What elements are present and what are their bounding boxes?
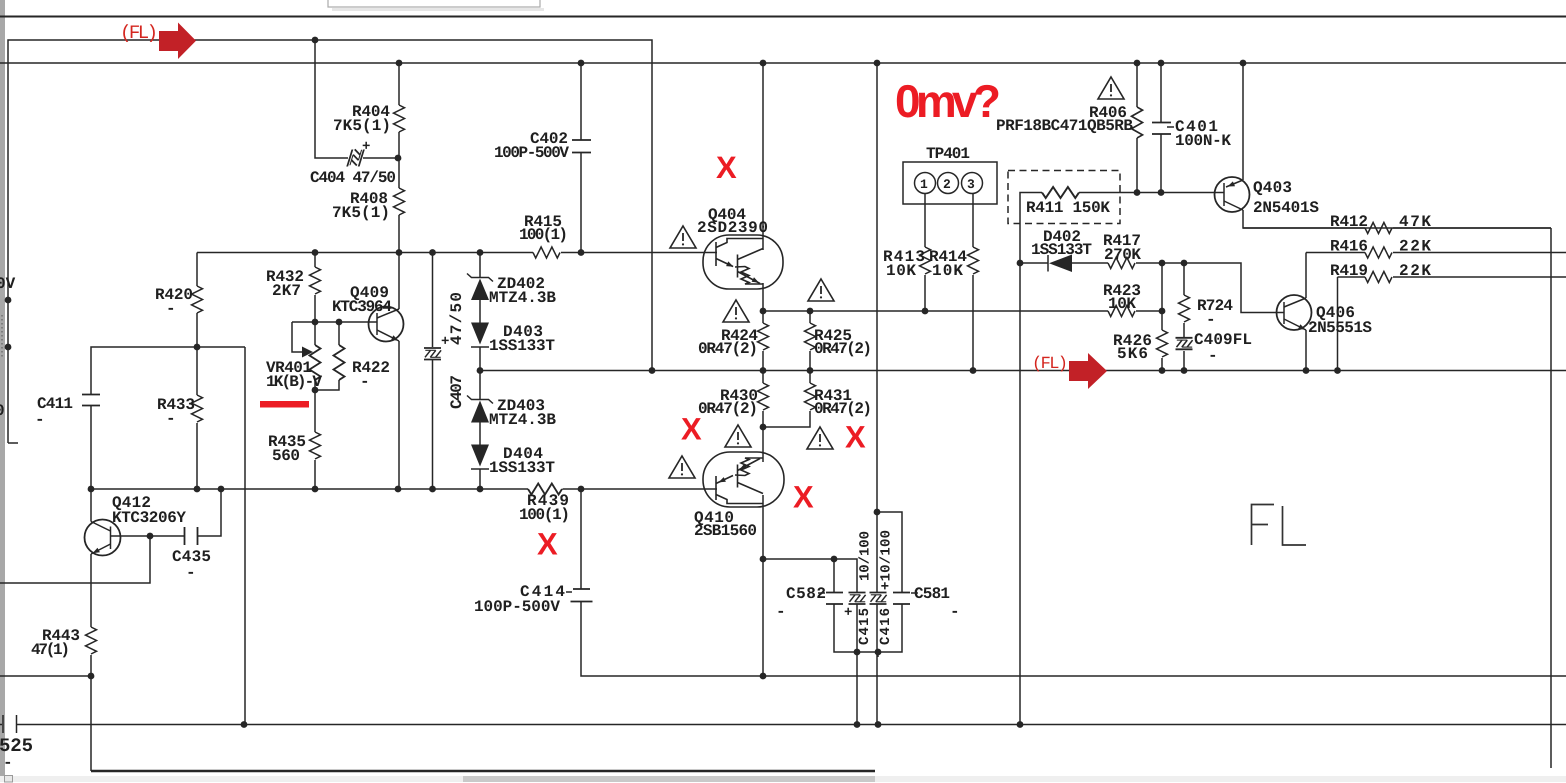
svg-text:3: 3 — [967, 177, 975, 192]
svg-text:1: 1 — [920, 177, 928, 192]
svg-text:2N5401S: 2N5401S — [1253, 199, 1319, 217]
svg-text:2SD2390: 2SD2390 — [697, 219, 768, 237]
svg-text:10K: 10K — [886, 262, 916, 280]
svg-text:C581: C581 — [914, 585, 950, 603]
svg-text:0R47(2): 0R47(2) — [814, 340, 872, 358]
svg-text:10/100: 10/100 — [858, 531, 874, 581]
svg-text:R419: R419 — [1330, 262, 1368, 280]
svg-text:X: X — [845, 420, 866, 455]
svg-text:270K: 270K — [1104, 246, 1141, 264]
svg-text:47K: 47K — [1399, 213, 1431, 231]
svg-text:Q403: Q403 — [1253, 179, 1292, 197]
svg-text:2SB1560: 2SB1560 — [694, 522, 757, 540]
svg-text:1K(B)-V: 1K(B)-V — [266, 373, 322, 391]
svg-text:MTZ4.3B: MTZ4.3B — [489, 411, 556, 429]
svg-text:KTC3206Y: KTC3206Y — [112, 509, 186, 527]
svg-text:R416: R416 — [1330, 238, 1368, 256]
svg-text:100N-K: 100N-K — [1175, 132, 1231, 150]
svg-text:0R47(2): 0R47(2) — [698, 340, 758, 358]
svg-text:2: 2 — [943, 177, 951, 192]
svg-text:7K5(1): 7K5(1) — [332, 204, 390, 222]
svg-text:0: 0 — [0, 402, 5, 420]
svg-text:100(1): 100(1) — [519, 226, 568, 244]
svg-text:-: - — [360, 373, 370, 391]
svg-text:100P-500V: 100P-500V — [494, 144, 569, 162]
svg-text:5K6: 5K6 — [1117, 345, 1148, 363]
svg-text:+: + — [844, 605, 852, 621]
svg-text:-: - — [166, 410, 176, 428]
svg-text:0R47(2): 0R47(2) — [698, 400, 758, 418]
svg-text:(FL): (FL) — [120, 22, 158, 44]
svg-text:X: X — [537, 527, 558, 562]
svg-text:-: - — [3, 754, 13, 772]
svg-text:0R47(2): 0R47(2) — [814, 400, 872, 418]
svg-text:C407: C407 — [448, 375, 466, 409]
svg-text:1SS133T: 1SS133T — [489, 337, 555, 355]
svg-text:X: X — [716, 150, 737, 185]
svg-text:10K: 10K — [932, 262, 963, 280]
svg-text:7K5(1): 7K5(1) — [333, 117, 391, 135]
svg-text:22K: 22K — [1399, 238, 1431, 256]
svg-text:C404 47/50: C404 47/50 — [310, 169, 396, 187]
svg-text:+10/100: +10/100 — [879, 530, 895, 590]
svg-text:560: 560 — [272, 447, 300, 465]
svg-text:0mv?: 0mv? — [895, 75, 1001, 127]
svg-text:R433: R433 — [157, 396, 195, 414]
svg-text:1SS133T: 1SS133T — [1031, 241, 1092, 259]
svg-text:-: - — [1206, 311, 1216, 329]
svg-text:MTZ4.3B: MTZ4.3B — [489, 289, 556, 307]
svg-text:C409FL: C409FL — [1194, 331, 1252, 349]
svg-text:R422: R422 — [352, 359, 390, 377]
svg-text:KTC3964: KTC3964 — [332, 298, 392, 316]
svg-text:X: X — [681, 412, 702, 447]
svg-text:(FL): (FL) — [1032, 355, 1068, 374]
svg-text:47/50: 47/50 — [448, 292, 466, 345]
svg-text:TP401: TP401 — [926, 145, 970, 163]
svg-text:1SS133T: 1SS133T — [489, 459, 555, 477]
svg-text:R412: R412 — [1330, 213, 1368, 231]
svg-text:2N5551S: 2N5551S — [1308, 319, 1372, 337]
svg-text:X: X — [793, 480, 814, 515]
svg-text:2K7: 2K7 — [272, 282, 301, 300]
svg-text:C415: C415 — [857, 608, 873, 645]
svg-text:10K: 10K — [1108, 295, 1136, 313]
svg-text:C582: C582 — [786, 585, 826, 603]
svg-text:-: - — [950, 603, 960, 621]
svg-text:100(1): 100(1) — [519, 506, 570, 524]
svg-text:-: - — [35, 411, 45, 429]
svg-text:PRF18BC471QB5RB: PRF18BC471QB5RB — [996, 117, 1133, 135]
svg-text:-: - — [166, 300, 176, 318]
svg-text:22K: 22K — [1399, 262, 1431, 280]
svg-text:100P-500V: 100P-500V — [474, 598, 560, 616]
svg-text:-: - — [1208, 347, 1218, 365]
svg-text:0V: 0V — [0, 275, 16, 293]
svg-text:-: - — [776, 603, 786, 621]
svg-text:47(1): 47(1) — [31, 641, 70, 659]
svg-text:C416: C416 — [878, 608, 894, 645]
svg-text:-: - — [186, 564, 196, 582]
svg-text:+: + — [362, 139, 370, 155]
svg-text:R411 150K: R411 150K — [1026, 199, 1110, 217]
